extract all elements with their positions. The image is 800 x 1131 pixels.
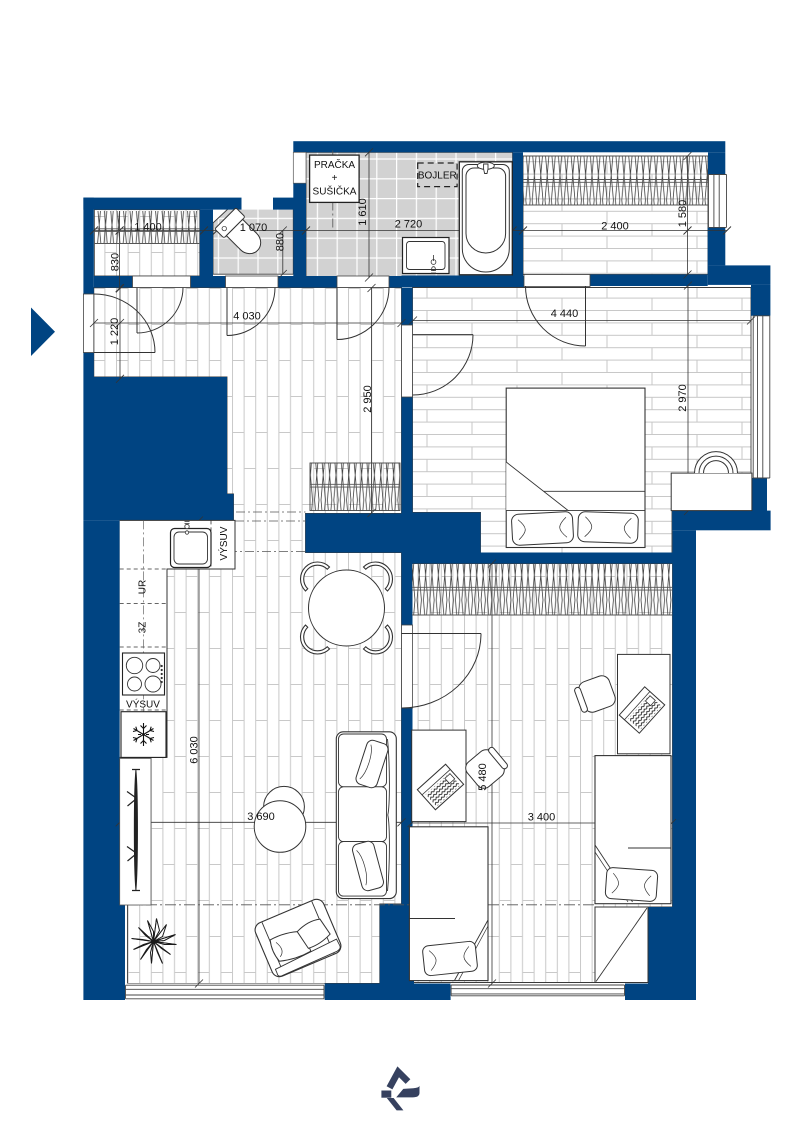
svg-text:PRAČKA: PRAČKA bbox=[314, 158, 355, 171]
svg-text:+: + bbox=[332, 173, 338, 184]
svg-text:1 070: 1 070 bbox=[240, 222, 268, 234]
svg-text:VÝSUV: VÝSUV bbox=[126, 698, 160, 711]
svg-text:1 400: 1 400 bbox=[134, 222, 162, 234]
svg-text:4 440: 4 440 bbox=[551, 308, 579, 320]
svg-text:2 400: 2 400 bbox=[601, 221, 629, 233]
svg-text:1 220: 1 220 bbox=[109, 318, 121, 346]
svg-text:1 610: 1 610 bbox=[357, 198, 369, 226]
svg-text:5 480: 5 480 bbox=[477, 763, 489, 791]
svg-text:VÝSUV: VÝSUV bbox=[217, 526, 230, 560]
svg-text:4 030: 4 030 bbox=[233, 311, 261, 323]
svg-text:3 400: 3 400 bbox=[528, 812, 556, 824]
svg-text:BOJLER: BOJLER bbox=[418, 171, 457, 182]
svg-text:UR: UR bbox=[138, 580, 149, 594]
svg-text:2 950: 2 950 bbox=[362, 385, 374, 413]
svg-text:2 970: 2 970 bbox=[677, 384, 689, 412]
svg-text:3Z: 3Z bbox=[138, 622, 149, 634]
svg-text:830: 830 bbox=[110, 253, 122, 271]
svg-text:3 690: 3 690 bbox=[247, 811, 275, 823]
svg-text:1 580: 1 580 bbox=[677, 200, 689, 228]
svg-text:880: 880 bbox=[275, 233, 287, 251]
svg-text:6 030: 6 030 bbox=[189, 736, 201, 764]
svg-text:SUŠIČKA: SUŠIČKA bbox=[313, 185, 357, 198]
svg-text:2 720: 2 720 bbox=[395, 219, 423, 231]
